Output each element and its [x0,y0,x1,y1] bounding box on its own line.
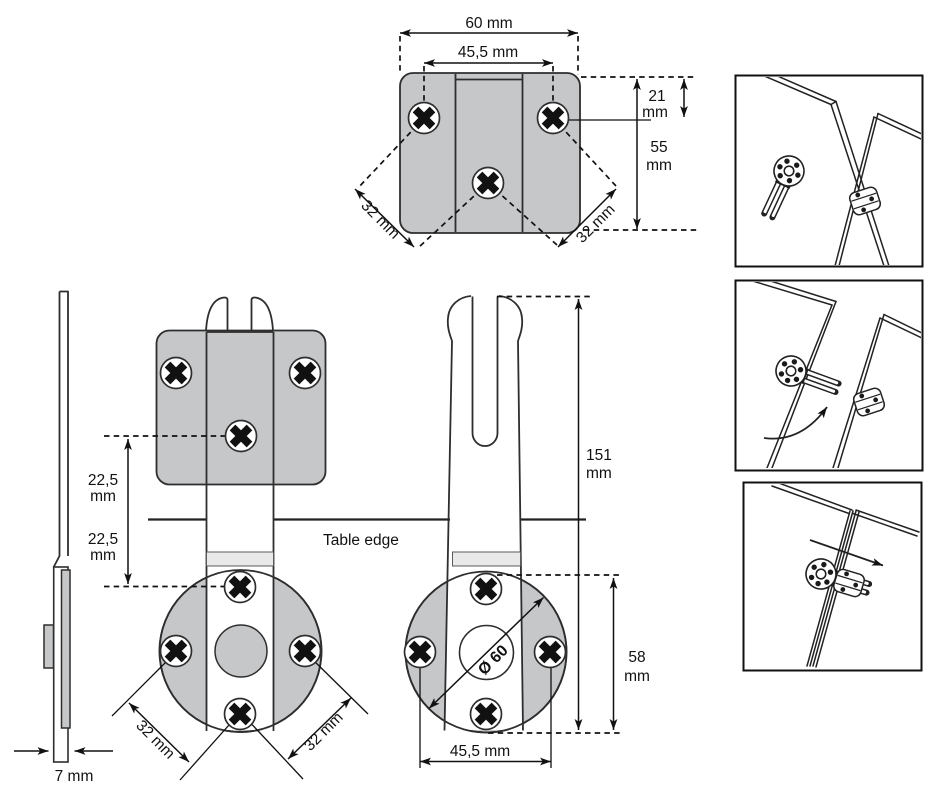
dim-bottom-hole-spacing-label: 45,5 mm [450,743,510,760]
dim-top-hole-spacing-label: 45,5 mm [458,44,518,61]
dim-top-depth-unit: mm [646,157,672,174]
dim-offset-below-unit: mm [90,547,116,564]
dim-offset-below-value: 22,5 [88,531,118,548]
installation-step-3 [744,482,922,671]
label-table-edge: Table edge [323,532,399,549]
dimension-total-length: 151 mm [579,299,612,730]
dim-disc-height-value: 58 [628,649,645,666]
dim-top-depth-value: 55 [650,139,667,156]
top-view: 60 mm 45,5 mm 21 mm 55 mm 32 mm 32 mm [355,15,697,248]
dim-length-value: 151 [586,447,612,464]
dimension-offset-edge: 22,5 mm 22,5 mm [88,439,128,584]
edge-bracket-icon [832,568,866,598]
dim-top-width-label: 60 mm [465,15,512,32]
installation-step-1 [736,71,923,267]
dimension-top-width: 60 mm [400,15,578,33]
connector-icon [755,151,809,222]
dim-top-diag-left-label: 32 mm [357,197,403,243]
dim-front-diag-right-label: 32 mm [301,709,347,755]
dim-length-unit: mm [586,465,612,482]
dimension-disc-height: 58 mm [614,578,650,730]
rotate-arrow-icon [764,407,827,439]
fitting-dimension-diagram: 60 mm 45,5 mm 21 mm 55 mm 32 mm 32 mm [0,0,937,791]
dim-offset-above-value: 22,5 [88,472,118,489]
dim-top-edge-offset-unit: mm [642,104,668,121]
dim-disc-height-unit: mm [624,668,650,685]
dim-offset-above-unit: mm [90,488,116,505]
dim-top-edge-offset-value: 21 [648,88,665,105]
dim-thickness-label: 7 mm [55,768,94,785]
front-view-connector: 151 mm 58 mm 45,5 mm Ø 60 [403,296,650,768]
installation-step-2 [736,273,924,471]
edge-bracket-icon [848,186,882,217]
dim-front-diag-left-label: 32 mm [132,717,178,763]
dimension-top-hole-spacing: 45,5 mm [424,44,553,63]
dimension-front-diag-left: 32 mm [129,703,189,763]
